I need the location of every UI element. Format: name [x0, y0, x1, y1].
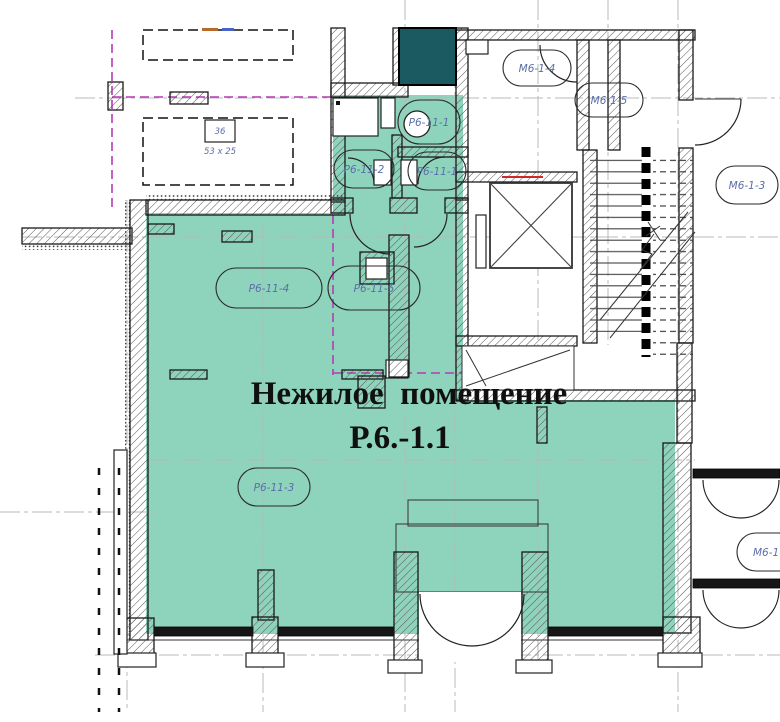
equipment-number: 36: [215, 127, 226, 137]
pier: [522, 552, 548, 662]
window-band: [154, 627, 253, 636]
door-swing: [703, 480, 741, 518]
pier: [663, 617, 700, 655]
clipped-text-mark: [222, 28, 234, 31]
elevator-shaft: [462, 177, 574, 390]
left-exterior-wall: [130, 200, 148, 640]
door-swing: [703, 590, 741, 628]
room-label: М6-1-3: [729, 180, 766, 192]
room-label: М6-1-4: [519, 63, 556, 75]
pier: [252, 617, 278, 655]
floor-plan: Р6-11-1 Р6-11-2 Р6-11-1 Р6-11-4 Р6-11-5 …: [0, 0, 780, 722]
ventilation-shaft: [399, 28, 456, 85]
window-band: [548, 627, 663, 636]
room-label: М6-1-: [753, 547, 780, 559]
room-label: Р6-11-1: [417, 166, 458, 178]
room-label: Р6-11-1: [409, 117, 450, 129]
column: [258, 570, 274, 620]
stair-flight-dashed: [653, 152, 693, 358]
premises-title: Нежилое помещение: [251, 376, 568, 412]
room-label: Р6-11-4: [249, 283, 290, 295]
pier: [126, 618, 154, 655]
room-label: М6-1-5: [591, 95, 628, 107]
counterweight: [476, 215, 486, 268]
column: [537, 407, 547, 443]
premises-number: Р.6.-1.1: [349, 420, 450, 456]
room-label: Р6-11-5: [354, 283, 395, 295]
stair-flight-down: [590, 150, 642, 332]
door-swing: [741, 590, 779, 628]
window-band: [278, 627, 394, 636]
clipped-text-mark: [202, 28, 218, 31]
room-label: Р6-11-2: [344, 164, 385, 176]
pier: [394, 552, 418, 662]
stairwell: [590, 147, 695, 358]
dashed-zone-1: [143, 30, 293, 60]
floor-plan-drawing: Р6-11-1 Р6-11-2 Р6-11-1 Р6-11-4 Р6-11-5 …: [0, 0, 780, 722]
room-label: Р6-11-3: [254, 482, 295, 494]
upper-left-room: [143, 28, 293, 185]
door-swing: [741, 480, 779, 518]
equipment-size: 53 х 25: [204, 147, 236, 157]
